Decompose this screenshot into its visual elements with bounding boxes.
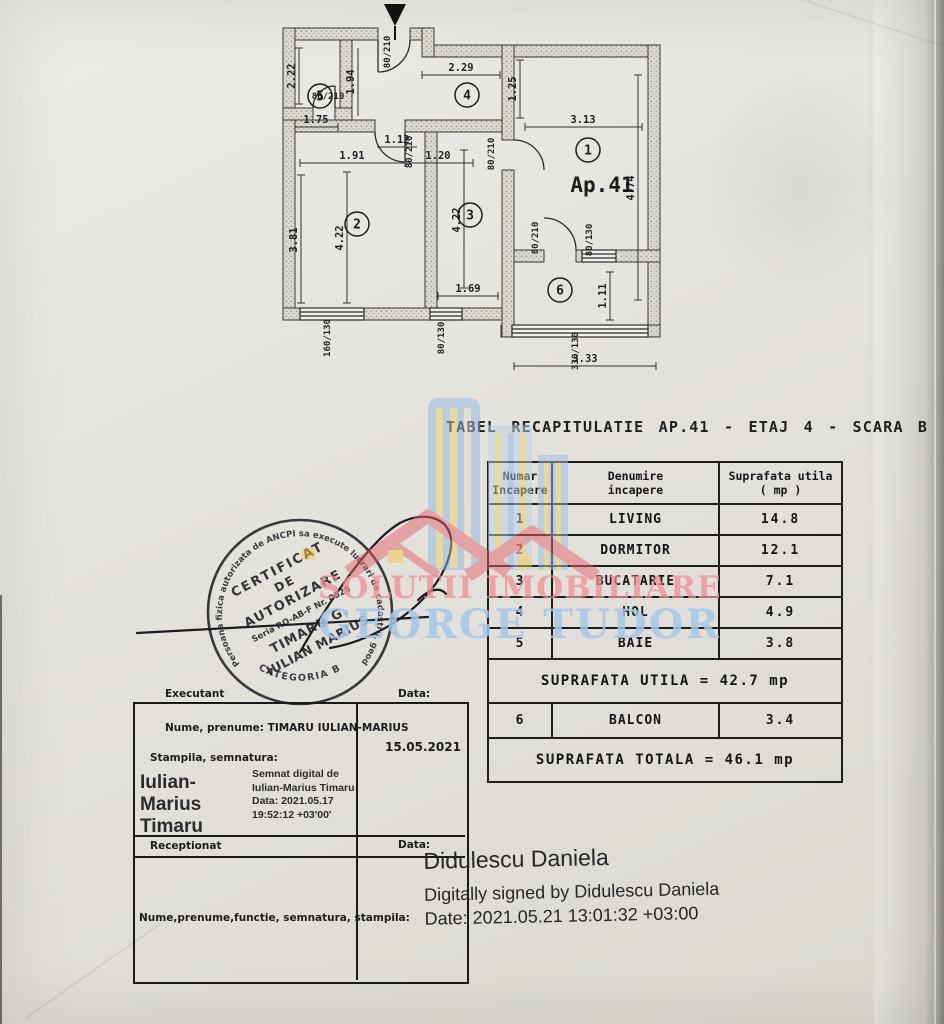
dim-label: 3.13: [570, 114, 595, 126]
window-size-label: 80/130: [437, 322, 447, 355]
window-size-label: 80/130: [585, 224, 595, 257]
sig-detail-line: Data: 2021.05.17: [252, 795, 357, 809]
authorization-stamp: Persoana fizica autorizata de ANCPI sa e…: [0, 480, 944, 740]
room-number: 6: [556, 284, 564, 299]
room-number: 4: [463, 89, 471, 104]
floor-plan: 1.75 2.22 1.94 2.29 1.25 1.12 3.13 4.74 …: [0, 0, 944, 400]
dim-label: 2.22: [286, 63, 298, 88]
dim-label: 1.94: [345, 69, 357, 94]
sig-detail-line: Iulian-Marius Timaru: [252, 782, 357, 796]
form-column-divider: [356, 702, 358, 980]
entry-arrow-icon: [384, 4, 406, 40]
dim-label: 1.11: [597, 283, 609, 308]
dim-label: 2.29: [448, 62, 473, 74]
window-size-label: 160/130: [323, 319, 333, 357]
apartment-label: Ap.41: [570, 173, 633, 197]
executant-label: Executant: [165, 688, 224, 700]
door-size-label: 80/210: [487, 138, 497, 171]
room-number: 1: [584, 144, 592, 159]
door-size-label: 80/210: [383, 36, 393, 69]
dim-label: 1.91: [339, 150, 364, 162]
door-size-label: 80/210: [405, 136, 415, 169]
room-number: 3: [466, 209, 474, 224]
table-title: TABEL RECAPITULATIE AP.41 - ETAJ 4 - SCA…: [446, 418, 906, 436]
receptionat-fields-line: Nume,prenume,functie, semnatura, stampil…: [139, 912, 410, 924]
dim-label: 1.25: [507, 76, 519, 101]
sig-detail-line: Semnat digital de: [252, 768, 357, 782]
suprafata-totala-line: SUPRAFATA TOTALA = 46.1 mp: [489, 739, 841, 781]
dim-label: 1.75: [303, 114, 328, 126]
digital-signature-timaru-details: Semnat digital de Iulian-Marius Timaru D…: [252, 768, 357, 823]
form-row-divider: [133, 856, 465, 858]
receptionat-label: Receptionat: [150, 840, 221, 852]
dim-label: 4.22: [451, 207, 463, 232]
door-size-label: 80/210: [531, 222, 541, 255]
executant-date-value: 15.05.2021: [385, 740, 461, 754]
sig-detail-line: 19:52:12 +03'00': [252, 809, 357, 823]
dim-label: 3.81: [288, 227, 300, 252]
dim-label: 1.20: [425, 150, 450, 162]
scanned-document-page: 1.75 2.22 1.94 2.29 1.25 1.12 3.13 4.74 …: [0, 0, 944, 1024]
dim-label: 1.69: [455, 283, 480, 295]
window-size-label: 330/130: [571, 332, 581, 370]
stampila-semnatura-line: Stampila, semnatura:: [150, 752, 278, 764]
digital-signature-timaru-name: Iulian-Marius Timaru: [140, 772, 255, 838]
sig-name-line1: Iulian-Marius: [140, 772, 255, 816]
data-label-top: Data:: [398, 688, 430, 700]
digital-signature-didulescu: Didulescu Daniela Digitally signed by Di…: [423, 838, 885, 931]
room-number: 5: [316, 90, 324, 105]
room-number: 2: [353, 218, 361, 233]
dim-label: 4.22: [334, 225, 346, 250]
didulescu-name: Didulescu Daniela: [423, 838, 883, 875]
sig-name-line2: Timaru: [140, 816, 255, 838]
nume-prenume-line: Nume, prenume: TIMARU IULIAN-MARIUS: [165, 722, 409, 734]
